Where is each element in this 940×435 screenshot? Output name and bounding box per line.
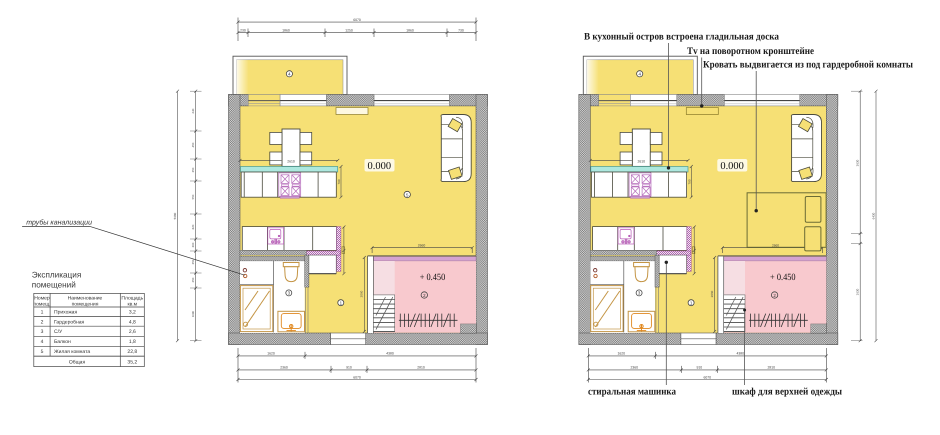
- svg-text:помещения: помещения: [72, 302, 99, 308]
- svg-text:1620: 1620: [618, 352, 626, 356]
- svg-text:4380: 4380: [386, 352, 394, 356]
- svg-text:помещений: помещений: [32, 281, 76, 290]
- svg-text:6070: 6070: [704, 375, 712, 379]
- svg-text:6070: 6070: [353, 18, 361, 22]
- svg-text:1: 1: [41, 310, 44, 316]
- svg-text:2660: 2660: [772, 244, 779, 248]
- svg-text:1860: 1860: [406, 28, 414, 32]
- svg-text:4,8: 4,8: [129, 319, 136, 325]
- svg-text:350: 350: [191, 259, 195, 264]
- svg-text:+ 0.450: + 0.450: [770, 273, 796, 283]
- svg-text:С/У: С/У: [54, 329, 63, 335]
- svg-text:Кровать выдвигается из под гар: Кровать выдвигается из под гардеробной к…: [703, 60, 913, 71]
- svg-text:шкаф для верхней одежды: шкаф для верхней одежды: [732, 386, 842, 397]
- svg-text:2,6: 2,6: [129, 329, 136, 335]
- svg-text:790: 790: [337, 179, 341, 184]
- svg-text:3630: 3630: [856, 159, 860, 166]
- svg-text:300: 300: [191, 242, 195, 247]
- svg-text:В кухонный остров встроена гла: В кухонный остров встроена гладильная до…: [584, 32, 779, 43]
- svg-text:3: 3: [41, 329, 44, 335]
- svg-text:1860: 1860: [282, 28, 290, 32]
- svg-text:2610: 2610: [638, 160, 646, 164]
- svg-text:Жилая комната: Жилая комната: [54, 349, 90, 355]
- svg-text:790: 790: [687, 179, 691, 184]
- svg-text:820: 820: [191, 224, 195, 229]
- svg-text:помещ.: помещ.: [33, 302, 50, 308]
- svg-text:2: 2: [41, 319, 44, 325]
- svg-text:250: 250: [191, 277, 195, 282]
- svg-text:стиральная машинка: стиральная машинка: [588, 386, 676, 397]
- svg-text:1250: 1250: [345, 28, 353, 32]
- svg-text:6070: 6070: [353, 375, 361, 379]
- svg-text:2060: 2060: [710, 290, 714, 297]
- svg-text:Общая: Общая: [69, 359, 86, 365]
- svg-text:2360: 2360: [280, 366, 288, 370]
- svg-text:450: 450: [191, 142, 195, 147]
- svg-text:910: 910: [346, 366, 352, 370]
- svg-text:6430: 6430: [871, 212, 875, 219]
- svg-text:3,2: 3,2: [129, 310, 136, 316]
- svg-text:350: 350: [191, 167, 195, 172]
- svg-text:Балкон: Балкон: [54, 339, 71, 345]
- svg-text:730: 730: [458, 28, 464, 32]
- svg-text:1630: 1630: [856, 288, 860, 295]
- svg-text:4: 4: [41, 339, 44, 345]
- svg-text:1,8: 1,8: [129, 339, 136, 345]
- svg-text:Гардеробная: Гардеробная: [54, 319, 85, 325]
- svg-text:+ 0.450: + 0.450: [420, 273, 446, 283]
- svg-text:Экспликация: Экспликация: [32, 271, 81, 280]
- svg-text:5680: 5680: [173, 212, 177, 219]
- svg-text:5: 5: [41, 349, 44, 355]
- svg-text:2660: 2660: [418, 243, 426, 247]
- svg-text:2060: 2060: [360, 290, 364, 297]
- svg-text:трубы канализации: трубы канализации: [26, 219, 92, 227]
- svg-text:0.000: 0.000: [368, 161, 392, 172]
- svg-text:22,8: 22,8: [127, 349, 137, 355]
- svg-text:2810: 2810: [768, 366, 776, 370]
- svg-text:2810: 2810: [417, 366, 425, 370]
- svg-text:230: 230: [240, 28, 246, 32]
- svg-text:4380: 4380: [737, 352, 745, 356]
- svg-text:кв.м: кв.м: [127, 302, 137, 308]
- svg-text:Tv на поворотном кронштейне: Tv на поворотном кронштейне: [687, 46, 815, 57]
- svg-text:Прихожая: Прихожая: [54, 310, 77, 316]
- svg-text:1080: 1080: [191, 310, 195, 317]
- svg-text:35,2: 35,2: [127, 359, 137, 365]
- svg-text:550: 550: [191, 194, 195, 199]
- svg-text:0.000: 0.000: [720, 161, 744, 172]
- svg-text:2360: 2360: [631, 366, 639, 370]
- svg-text:1620: 1620: [267, 352, 275, 356]
- svg-text:910: 910: [696, 366, 702, 370]
- svg-text:640: 640: [191, 108, 195, 113]
- svg-text:2610: 2610: [287, 160, 295, 164]
